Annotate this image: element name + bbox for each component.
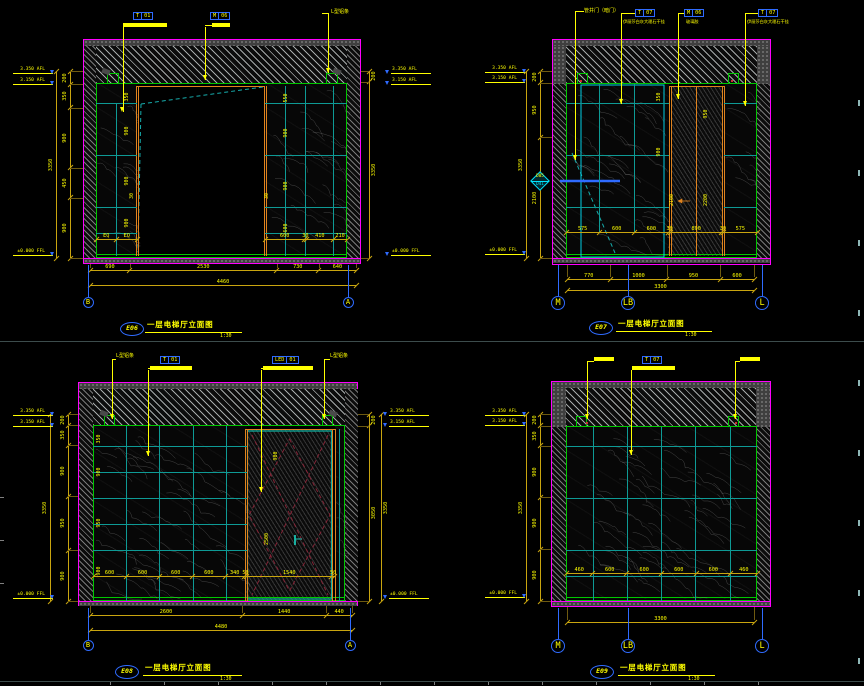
dim-ext bbox=[358, 426, 369, 427]
detail-tag-cell: 06 bbox=[218, 13, 229, 19]
dim-label: 200 bbox=[60, 415, 66, 424]
dim-ext bbox=[754, 265, 755, 277]
inner-dim-label: 950 bbox=[97, 518, 103, 527]
elevation-underline bbox=[13, 255, 53, 256]
elevation-triangle-icon bbox=[522, 79, 526, 83]
inner-dim-label: 2200 bbox=[704, 194, 710, 206]
soffit-step bbox=[577, 73, 588, 84]
dim-total: 3350 bbox=[48, 158, 54, 171]
dim-chain bbox=[93, 576, 335, 577]
title-underline bbox=[616, 331, 712, 332]
inner-dim-label: 30 bbox=[265, 193, 271, 199]
dim-total: 4480 bbox=[215, 624, 228, 630]
elevation-label: 3.350 AFL bbox=[390, 409, 415, 414]
dim-ext bbox=[540, 137, 552, 138]
tile-joint-h bbox=[566, 498, 757, 499]
callout-text: L型铝条 bbox=[116, 354, 134, 360]
inner-dim-label: 900 bbox=[125, 126, 131, 135]
inner-dim-label: 600 bbox=[284, 223, 290, 232]
callout-leader bbox=[322, 13, 328, 14]
detail-tag: LED01 bbox=[272, 356, 299, 364]
dim-label: 350 bbox=[62, 91, 68, 100]
concrete-block bbox=[553, 46, 566, 84]
elevation-underline bbox=[13, 415, 53, 416]
callout-leader bbox=[261, 370, 262, 492]
tile-joint-v bbox=[305, 86, 306, 256]
tile-joint-h bbox=[265, 155, 347, 156]
grid-leader bbox=[558, 265, 559, 296]
callout-leader bbox=[123, 27, 124, 112]
detail-tag-cell: 01 bbox=[168, 357, 179, 363]
detail-tag: M06 bbox=[210, 12, 230, 20]
elevation-label: 3.350 AFL bbox=[455, 66, 517, 71]
dim-label: 900 bbox=[532, 570, 538, 579]
detail-tag: T01 bbox=[133, 12, 153, 20]
concrete-block bbox=[756, 388, 770, 427]
floor-strip bbox=[84, 259, 360, 263]
elevation-underline bbox=[391, 84, 431, 85]
detail-tag-cell: T bbox=[134, 13, 141, 19]
dim-ext bbox=[68, 414, 78, 415]
dim-chain bbox=[540, 414, 541, 601]
panel-separator bbox=[0, 681, 864, 682]
soffit-step bbox=[728, 73, 739, 84]
ruler-tick bbox=[164, 682, 165, 685]
grid-leader bbox=[350, 608, 351, 640]
elevation-triangle-icon bbox=[385, 70, 389, 74]
dim-ext bbox=[540, 414, 551, 415]
detail-tag: M06 bbox=[684, 9, 704, 17]
tile-joint-v bbox=[634, 84, 635, 232]
panel-e07: 5756006003089030575770100095060033002009… bbox=[432, 0, 864, 343]
dim-ext bbox=[326, 606, 327, 613]
elevation-label: ±0.000 FFL bbox=[392, 249, 420, 254]
elevation-label: ±0.000 FFL bbox=[390, 592, 418, 597]
leader-arrow-icon bbox=[573, 155, 577, 160]
dim-label: 3350 bbox=[371, 164, 377, 177]
dim-ext bbox=[70, 84, 83, 85]
dim-ext bbox=[567, 607, 568, 620]
ruler-tick bbox=[704, 682, 705, 685]
tile-joint-h bbox=[566, 155, 669, 156]
grid-leader bbox=[558, 608, 559, 639]
view-title: 一层电梯厅立面图 bbox=[145, 664, 211, 673]
grid-bubble: L bbox=[755, 296, 769, 310]
ruler-tick bbox=[542, 682, 543, 685]
edge-mark bbox=[0, 540, 4, 541]
dim-label: 900 bbox=[62, 133, 68, 142]
dim-label: 600 bbox=[171, 570, 180, 576]
dim-ext bbox=[90, 606, 91, 613]
elevation-underline bbox=[485, 82, 525, 83]
dim-label: 600 bbox=[605, 567, 614, 573]
wall-hatch bbox=[347, 46, 360, 259]
inner-dim-label: 350 bbox=[657, 92, 663, 101]
dim-label: 1440 bbox=[278, 609, 291, 615]
detail-tag-cell: T bbox=[759, 10, 766, 16]
elevation-underline bbox=[485, 72, 525, 73]
ruler-tick bbox=[218, 682, 219, 685]
callout-leader bbox=[575, 11, 584, 12]
dim-chain bbox=[540, 71, 541, 258]
edge-mark bbox=[858, 240, 860, 246]
leader-arrow-icon bbox=[259, 487, 263, 492]
leader-arrow-icon bbox=[120, 107, 124, 112]
detail-tag-cell: T bbox=[161, 357, 168, 363]
elevation-underline bbox=[389, 426, 429, 427]
elevation-label: 3.350 AFL bbox=[392, 67, 417, 72]
dim-label: 690 bbox=[105, 264, 114, 270]
dim-label: 900 bbox=[60, 466, 66, 475]
elevation-triangle-icon bbox=[383, 423, 387, 427]
tile-joint-h bbox=[93, 524, 247, 525]
detail-tag: T07 bbox=[635, 9, 655, 17]
tile-joint-v bbox=[661, 427, 662, 601]
dim-label: 600 bbox=[709, 567, 718, 573]
dim-total: 4460 bbox=[217, 279, 230, 285]
leader-arrow-icon bbox=[322, 414, 326, 419]
dim-ext bbox=[68, 425, 78, 426]
inner-dim-label: 350 bbox=[97, 434, 103, 443]
annotation-bar bbox=[740, 357, 760, 361]
elevation-triangle-icon bbox=[522, 594, 526, 598]
dim-label: 350 bbox=[60, 431, 66, 440]
inner-dim-label: 900 bbox=[284, 128, 290, 137]
callout-note: 伊丽莎白灰大理石干挂 bbox=[623, 19, 665, 24]
grid-bubble: B bbox=[83, 640, 94, 651]
annotation-bar bbox=[212, 23, 230, 27]
dim-label: 900 bbox=[62, 223, 68, 232]
dim-label: 460 bbox=[739, 567, 748, 573]
grid-bubble: M bbox=[551, 639, 565, 653]
edge-mark bbox=[858, 520, 860, 526]
elevation-label: 3.150 AFL bbox=[392, 78, 417, 83]
floor-strip bbox=[553, 259, 770, 263]
dim-label: 2600 bbox=[160, 609, 173, 615]
dim-label: 600 bbox=[105, 570, 114, 576]
dim-label: 950 bbox=[60, 518, 66, 527]
dim-ext bbox=[130, 264, 131, 268]
dim-ext bbox=[70, 71, 83, 72]
dim-chain bbox=[90, 615, 352, 616]
title-underline bbox=[143, 675, 242, 676]
panel-e06: EQEQ600304102106902530730640446020035090… bbox=[0, 0, 432, 343]
ruler-tick bbox=[380, 682, 381, 685]
elevation-label: 3.350 AFL bbox=[455, 409, 517, 414]
dim-label: 450 bbox=[62, 178, 68, 187]
leader-arrow-icon bbox=[110, 414, 114, 419]
grid-bubble: A bbox=[343, 297, 354, 308]
inner-dim-label: 2500 bbox=[265, 533, 271, 545]
dim-ext bbox=[70, 108, 83, 109]
dim-label: 600 bbox=[732, 273, 741, 279]
dim-ext bbox=[319, 264, 320, 268]
dim-ext bbox=[567, 265, 568, 277]
view-title: 一层电梯厅立面图 bbox=[618, 320, 684, 329]
elevation-label: ±0.000 FFL bbox=[455, 248, 517, 253]
dim-ext bbox=[540, 426, 551, 427]
dim-ext bbox=[540, 601, 551, 602]
title-underline bbox=[145, 332, 242, 333]
inner-dim-label: 900 bbox=[125, 176, 131, 185]
dim-ext bbox=[90, 264, 91, 268]
grid-bubble: B bbox=[83, 297, 94, 308]
callout-leader bbox=[745, 13, 746, 106]
skirting-line bbox=[97, 254, 346, 255]
grid-bubble: A bbox=[345, 640, 356, 651]
dim-ext bbox=[70, 198, 83, 199]
dim-label: 50 bbox=[330, 570, 336, 576]
panel-e09: 4606006006006004603300200350900900900335… bbox=[432, 343, 864, 686]
elevation-triangle-icon bbox=[50, 252, 54, 256]
dim-ext bbox=[70, 168, 83, 169]
callout-text: 管井门（暗门） bbox=[584, 9, 619, 15]
elevation-label: ±0.000 FFL bbox=[0, 592, 45, 597]
concrete-block bbox=[552, 388, 566, 427]
tile-joint-h bbox=[96, 207, 137, 208]
dim-label: 200 bbox=[371, 415, 377, 424]
dim-label: 2100 bbox=[532, 191, 538, 204]
dim-ext bbox=[356, 264, 357, 268]
annotation-bar bbox=[150, 366, 192, 370]
callout-leader bbox=[205, 27, 206, 80]
dim-ext bbox=[361, 82, 369, 83]
dim-total: 3350 bbox=[383, 501, 389, 514]
dim-ext bbox=[540, 549, 551, 550]
edge-mark bbox=[858, 658, 860, 664]
dim-ext bbox=[68, 496, 78, 497]
elevation-triangle-icon bbox=[50, 595, 54, 599]
elevation-label: 3.350 AFL bbox=[0, 67, 45, 72]
elevation-triangle-icon bbox=[50, 412, 54, 416]
elevation-underline bbox=[13, 598, 53, 599]
skirting-line bbox=[567, 254, 756, 255]
dim-label: 200 bbox=[62, 73, 68, 82]
dim-ext bbox=[70, 258, 83, 259]
view-scale: 1:30 bbox=[220, 334, 232, 340]
tile-joint-h bbox=[566, 550, 757, 551]
inner-dim-label: 900 bbox=[284, 181, 290, 190]
leader-arrow-icon bbox=[146, 451, 150, 456]
door-frame-line bbox=[264, 86, 265, 256]
door-head-line bbox=[245, 429, 335, 430]
fixing-mark bbox=[580, 80, 582, 82]
detail-tag-cell: M bbox=[685, 10, 692, 16]
dim-label: 600 bbox=[674, 567, 683, 573]
wall-hatch bbox=[79, 389, 93, 601]
dim-ext bbox=[358, 414, 369, 415]
tile-joint-h bbox=[96, 155, 137, 156]
grid-leader bbox=[628, 265, 629, 296]
dim-label: 200 bbox=[371, 72, 377, 81]
edge-mark bbox=[858, 380, 860, 386]
leader-arrow-icon bbox=[326, 68, 330, 73]
dim-ext bbox=[540, 258, 552, 259]
edge-mark bbox=[858, 590, 860, 596]
tile-joint-h bbox=[265, 207, 347, 208]
inner-dim-label: 350 bbox=[125, 92, 131, 101]
inner-dim-label: 950 bbox=[704, 109, 710, 118]
grid-leader bbox=[628, 608, 629, 639]
elevation-label: 3.150 AFL bbox=[0, 78, 45, 83]
dim-chain bbox=[90, 285, 356, 286]
tile-joint-v bbox=[339, 429, 340, 601]
tile-joint-h bbox=[93, 550, 247, 551]
edge-mark bbox=[858, 310, 860, 316]
dim-label: 600 bbox=[204, 570, 213, 576]
dim-label: 770 bbox=[584, 273, 593, 279]
dim-chain bbox=[566, 232, 757, 233]
detail-tag-cell: 07 bbox=[643, 10, 654, 16]
tile-joint-v bbox=[593, 427, 594, 601]
elevation-underline bbox=[13, 73, 53, 74]
annotation-bar bbox=[594, 357, 614, 361]
dim-ext bbox=[610, 265, 611, 277]
elevation-triangle-icon bbox=[522, 412, 526, 416]
dim-chain bbox=[68, 414, 69, 601]
elevation-underline bbox=[485, 597, 525, 598]
dim-total: 3350 bbox=[42, 501, 48, 514]
dim-label: 200 bbox=[532, 415, 538, 424]
dim-label: 50 bbox=[242, 570, 248, 576]
dim-ext bbox=[68, 445, 78, 446]
dim-chain bbox=[381, 414, 382, 601]
dim-label: 410 bbox=[315, 233, 324, 239]
callout-leader bbox=[621, 13, 635, 14]
inner-dim-label: 30 bbox=[130, 193, 136, 199]
dim-chain bbox=[369, 414, 370, 601]
tile-joint-v bbox=[599, 84, 600, 232]
door-head-line bbox=[136, 86, 265, 87]
dim-ext bbox=[540, 71, 552, 72]
elevation-underline bbox=[389, 415, 429, 416]
annotation-bar bbox=[632, 366, 675, 370]
ruler-tick bbox=[434, 682, 435, 685]
callout-leader bbox=[324, 359, 325, 419]
inner-dim-label: 2100 bbox=[670, 194, 676, 206]
annotation-bar bbox=[123, 23, 167, 27]
ceiling-hatch bbox=[96, 46, 347, 83]
ruler-tick bbox=[596, 682, 597, 685]
elevation-label: 3.150 AFL bbox=[390, 420, 415, 425]
callout-text: L型铝条 bbox=[330, 354, 348, 360]
callout-leader bbox=[631, 370, 632, 455]
elevation-label: ±0.000 FFL bbox=[0, 249, 45, 254]
section-tag-bottom: D41 bbox=[536, 182, 544, 187]
dim-label: 210 bbox=[335, 233, 344, 239]
door-frame-line bbox=[138, 86, 139, 256]
ruler-tick bbox=[488, 682, 489, 685]
callout-leader bbox=[328, 13, 329, 73]
dim-label: 340 bbox=[230, 570, 239, 576]
dim-label: 640 bbox=[333, 264, 342, 270]
elevation-underline bbox=[13, 426, 53, 427]
callout-leader bbox=[735, 361, 740, 362]
inner-dim-label: 900 bbox=[657, 147, 663, 156]
wall-hatch bbox=[345, 389, 358, 601]
dim-ext bbox=[754, 607, 755, 620]
elevation-underline bbox=[485, 415, 525, 416]
callout-leader bbox=[148, 370, 149, 456]
ruler-tick bbox=[650, 682, 651, 685]
elevation-underline bbox=[391, 73, 431, 74]
view-tag: E09 bbox=[596, 668, 608, 676]
dim-label: 730 bbox=[293, 264, 302, 270]
dim-ext bbox=[242, 606, 243, 613]
dim-ext bbox=[361, 258, 369, 259]
floor-strip bbox=[79, 602, 357, 606]
grid-leader bbox=[762, 608, 763, 639]
dim-ext bbox=[277, 264, 278, 268]
detail-tag: T01 bbox=[160, 356, 180, 364]
detail-tag-cell: T bbox=[636, 10, 643, 16]
tile-joint-h bbox=[93, 446, 247, 447]
dim-chain bbox=[50, 414, 51, 601]
dim-chain bbox=[369, 71, 370, 258]
leader-arrow-icon bbox=[585, 414, 589, 419]
ceiling-hatch bbox=[93, 389, 345, 425]
wall-hatch bbox=[757, 84, 770, 260]
elevation-triangle-icon bbox=[50, 81, 54, 85]
dim-chain bbox=[567, 622, 754, 623]
face-outline bbox=[96, 83, 347, 258]
callout-leader bbox=[745, 13, 758, 14]
dim-label: 1540 bbox=[283, 570, 296, 576]
grid-bubble: LB bbox=[621, 639, 635, 653]
floor-strip bbox=[552, 602, 770, 606]
elevation-triangle-icon bbox=[50, 423, 54, 427]
view-scale: 1:30 bbox=[685, 333, 697, 339]
callout-leader bbox=[735, 361, 736, 419]
dim-label: 1000 bbox=[632, 273, 645, 279]
elevation-underline bbox=[485, 254, 525, 255]
panel-e08: 6006006006003405015405026001440440448020… bbox=[0, 343, 432, 686]
leader-arrow-icon bbox=[676, 94, 680, 99]
dim-ext bbox=[361, 71, 369, 72]
elevation-triangle-icon bbox=[522, 422, 526, 426]
dim-ext bbox=[358, 601, 369, 602]
detail-tag-cell: 07 bbox=[766, 10, 777, 16]
dim-label: 600 bbox=[612, 226, 621, 232]
elevation-triangle-icon bbox=[383, 412, 387, 416]
wall-hatch bbox=[756, 427, 770, 604]
elevation-label: 3.150 AFL bbox=[0, 420, 45, 425]
cad-sheet: EQEQ600304102106902530730640446020035090… bbox=[0, 0, 864, 686]
dim-ext bbox=[68, 601, 78, 602]
dim-label: 3050 bbox=[371, 507, 377, 520]
tile-joint-v bbox=[627, 427, 628, 601]
detail-tag: T07 bbox=[642, 356, 662, 364]
elevation-triangle-icon bbox=[385, 252, 389, 256]
ruler-tick bbox=[110, 682, 111, 685]
tile-joint-h bbox=[265, 103, 347, 104]
tile-joint-h bbox=[566, 207, 669, 208]
dim-ext bbox=[720, 265, 721, 277]
elevation-underline bbox=[485, 425, 525, 426]
tile-joint-h bbox=[724, 103, 757, 104]
soffit-step bbox=[326, 73, 338, 84]
dim-label: EQ bbox=[103, 233, 109, 239]
inner-dim-label: 550 bbox=[284, 93, 290, 102]
dim-label: 350 bbox=[532, 431, 538, 440]
dim-label: 950 bbox=[532, 105, 538, 114]
dim-label: 30 bbox=[666, 226, 672, 232]
dim-total: 3300 bbox=[654, 284, 667, 290]
detail-tag: T07 bbox=[758, 9, 778, 17]
tile-joint-h bbox=[724, 155, 757, 156]
view-tag: E08 bbox=[121, 668, 133, 676]
dim-chain bbox=[567, 279, 754, 280]
